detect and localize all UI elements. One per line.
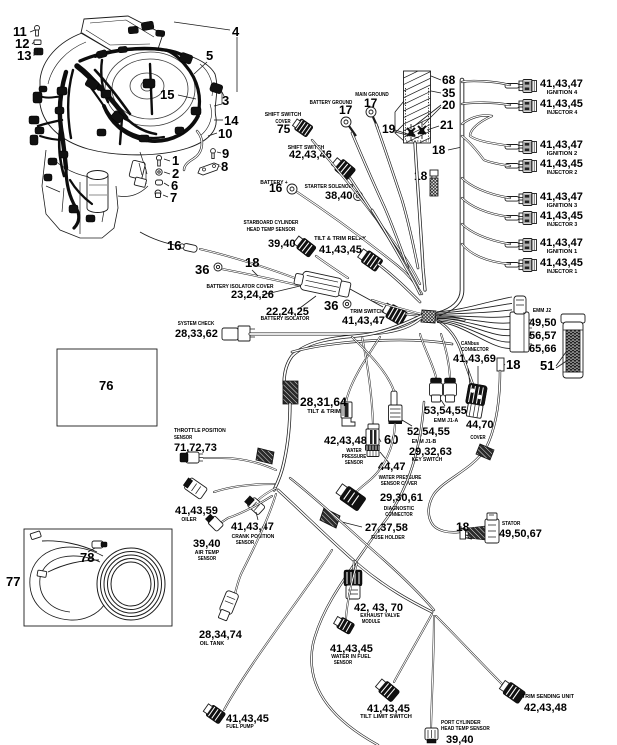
svg-text:FUEL PUMP: FUEL PUMP [226,724,254,730]
svg-text:SENSOR: SENSOR [236,540,254,546]
svg-text:INJECTOR 4: INJECTOR 4 [547,110,578,116]
svg-text:27,37,58: 27,37,58 [365,522,408,534]
svg-text:78: 78 [80,550,94,565]
svg-text:IGNITION 3: IGNITION 3 [547,203,578,209]
svg-text:41,43,45: 41,43,45 [540,257,583,269]
svg-text:41,43,47: 41,43,47 [540,237,583,249]
svg-text:CONNECTOR: CONNECTOR [385,512,412,518]
svg-text:16: 16 [269,181,283,195]
svg-text:18: 18 [245,255,259,270]
svg-text:13: 13 [17,48,31,63]
svg-text:42,43,48: 42,43,48 [524,702,567,714]
svg-text:52,54,55: 52,54,55 [407,426,450,438]
svg-text:TRIM SENDING UNIT: TRIM SENDING UNIT [522,694,574,700]
svg-text:29,30,61: 29,30,61 [380,492,423,504]
svg-text:18: 18 [506,357,520,372]
svg-text:39,40: 39,40 [193,538,221,550]
svg-text:STARBOARD CYLINDER: STARBOARD CYLINDER [244,220,299,226]
svg-text:39,40: 39,40 [268,238,296,250]
svg-text:42,43,48: 42,43,48 [324,435,367,447]
svg-text:49,50: 49,50 [529,317,557,329]
svg-text:41,43,47: 41,43,47 [231,521,274,533]
svg-text:SENSOR: SENSOR [174,435,192,441]
svg-text:51: 51 [540,358,554,373]
svg-text:SHIFT SWITCH: SHIFT SWITCH [265,112,302,118]
svg-text:41,43,47: 41,43,47 [540,191,583,203]
svg-text:77: 77 [6,574,20,589]
svg-text:EMM J1-A: EMM J1-A [434,418,458,424]
svg-text:INJECTOR 1: INJECTOR 1 [547,269,578,275]
svg-text:41,43,45: 41,43,45 [540,210,583,222]
svg-text:HEAD TEMP SENSOR: HEAD TEMP SENSOR [247,227,296,233]
svg-text:41,43,45: 41,43,45 [319,244,362,256]
svg-text:EMM J2: EMM J2 [533,308,551,314]
svg-text:18: 18 [432,143,446,157]
svg-text:SENSOR: SENSOR [334,660,352,666]
svg-text:COVER: COVER [470,435,485,441]
svg-text:STATOR: STATOR [502,521,520,527]
svg-text:19: 19 [382,122,396,136]
svg-text:SENSOR: SENSOR [198,556,216,562]
svg-text:IGNITION 1: IGNITION 1 [547,249,578,255]
svg-text:36: 36 [324,298,338,313]
svg-text:41,43,47: 41,43,47 [540,78,583,90]
svg-text:SYSTEM CHECK: SYSTEM CHECK [178,321,215,327]
svg-text:8: 8 [221,159,228,174]
svg-text:44,70: 44,70 [466,419,494,431]
svg-text:36: 36 [195,262,209,277]
svg-text:INJECTOR 2: INJECTOR 2 [547,170,578,176]
svg-text:56,57: 56,57 [529,330,557,342]
svg-text:41,43,47: 41,43,47 [342,315,385,327]
svg-text:SENSOR COVER: SENSOR COVER [381,481,418,487]
svg-text:41,43,45: 41,43,45 [540,98,583,110]
svg-text:BATTERY ISOLATOR: BATTERY ISOLATOR [261,316,310,322]
svg-text:INJECTOR 3: INJECTOR 3 [547,222,578,228]
svg-text:HEAD TEMP SENSOR: HEAD TEMP SENSOR [441,726,490,732]
svg-text:23,24,26: 23,24,26 [231,289,274,301]
svg-text:5: 5 [206,48,213,63]
svg-text:4: 4 [232,24,240,39]
svg-text:38,40: 38,40 [325,190,353,202]
svg-text:76: 76 [99,378,113,393]
svg-text:IGNITION 2: IGNITION 2 [547,151,578,157]
svg-text:28,31,64: 28,31,64 [300,395,347,409]
svg-text:16: 16 [167,238,181,253]
svg-text:71,72,73: 71,72,73 [174,442,217,454]
svg-text:49,50,67: 49,50,67 [499,528,542,540]
svg-text:OILER: OILER [181,517,196,523]
svg-text:17: 17 [339,103,353,117]
svg-text:15: 15 [160,87,174,102]
svg-text:THROTTLE POSITION: THROTTLE POSITION [174,428,226,434]
svg-text:20: 20 [442,98,456,112]
svg-text:FUSE HOLDER: FUSE HOLDER [371,535,405,541]
svg-text:18: 18 [456,520,470,534]
svg-text:TILT & TRIM: TILT & TRIM [307,409,341,415]
svg-text:21: 21 [440,118,454,132]
svg-text:65,66: 65,66 [529,343,557,355]
svg-text:41,43,47: 41,43,47 [540,139,583,151]
svg-text:TILT LIMIT SWITCH: TILT LIMIT SWITCH [360,714,412,720]
svg-text:3: 3 [222,93,229,108]
svg-text:IGNITION 4: IGNITION 4 [547,90,578,96]
svg-text:28,34,74: 28,34,74 [199,629,243,641]
svg-text:10: 10 [218,126,232,141]
svg-text:17: 17 [364,96,378,110]
svg-text:EMM J1-B: EMM J1-B [412,439,436,445]
svg-text:41,43,45: 41,43,45 [540,158,583,170]
svg-text:SENSOR: SENSOR [345,460,363,466]
svg-text:53,54,55: 53,54,55 [424,405,467,417]
svg-text:75: 75 [277,122,291,136]
svg-text:68: 68 [442,73,456,87]
svg-text:TILT & TRIM RELAY: TILT & TRIM RELAY [314,236,366,242]
svg-text:7: 7 [170,190,177,205]
svg-text:28,33,62: 28,33,62 [175,328,218,340]
svg-text:41,43,69: 41,43,69 [453,353,496,365]
svg-text:39,40: 39,40 [446,734,474,745]
svg-text:KEY SWITCH: KEY SWITCH [412,457,443,463]
svg-text:MODULE: MODULE [362,619,381,625]
svg-text:OIL TANK: OIL TANK [200,641,224,647]
